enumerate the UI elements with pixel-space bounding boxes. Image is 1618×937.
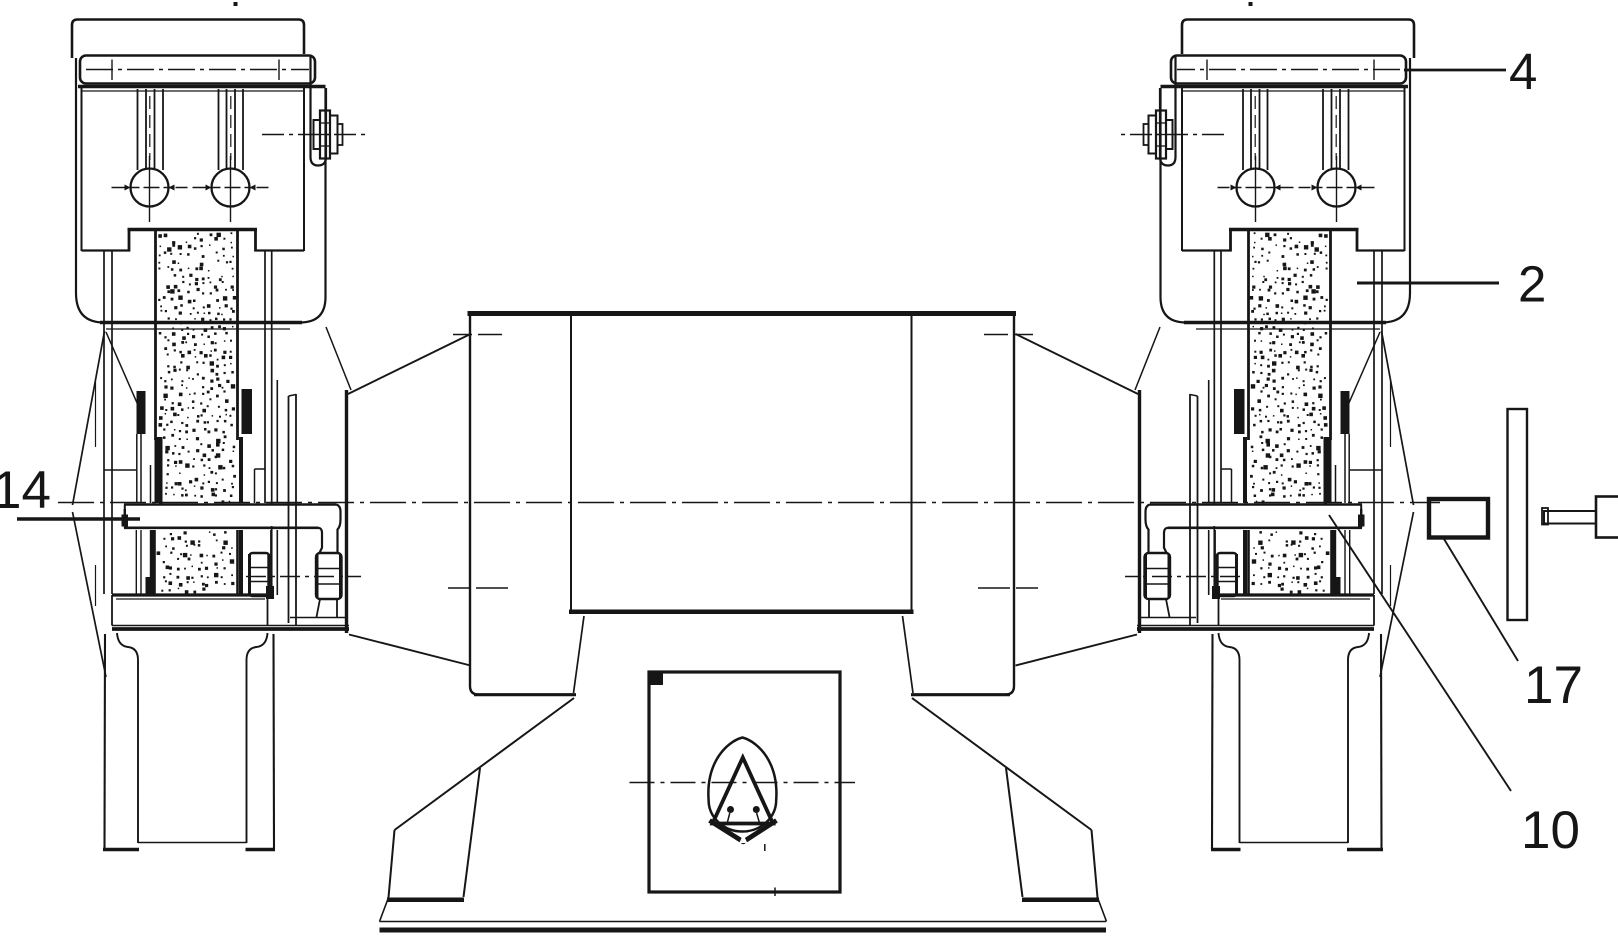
- svg-text:17: 17: [1524, 656, 1583, 715]
- svg-text:10: 10: [1521, 801, 1580, 860]
- svg-text:2: 2: [1518, 256, 1546, 313]
- svg-text:14: 14: [0, 461, 51, 520]
- svg-text:4: 4: [1509, 43, 1537, 100]
